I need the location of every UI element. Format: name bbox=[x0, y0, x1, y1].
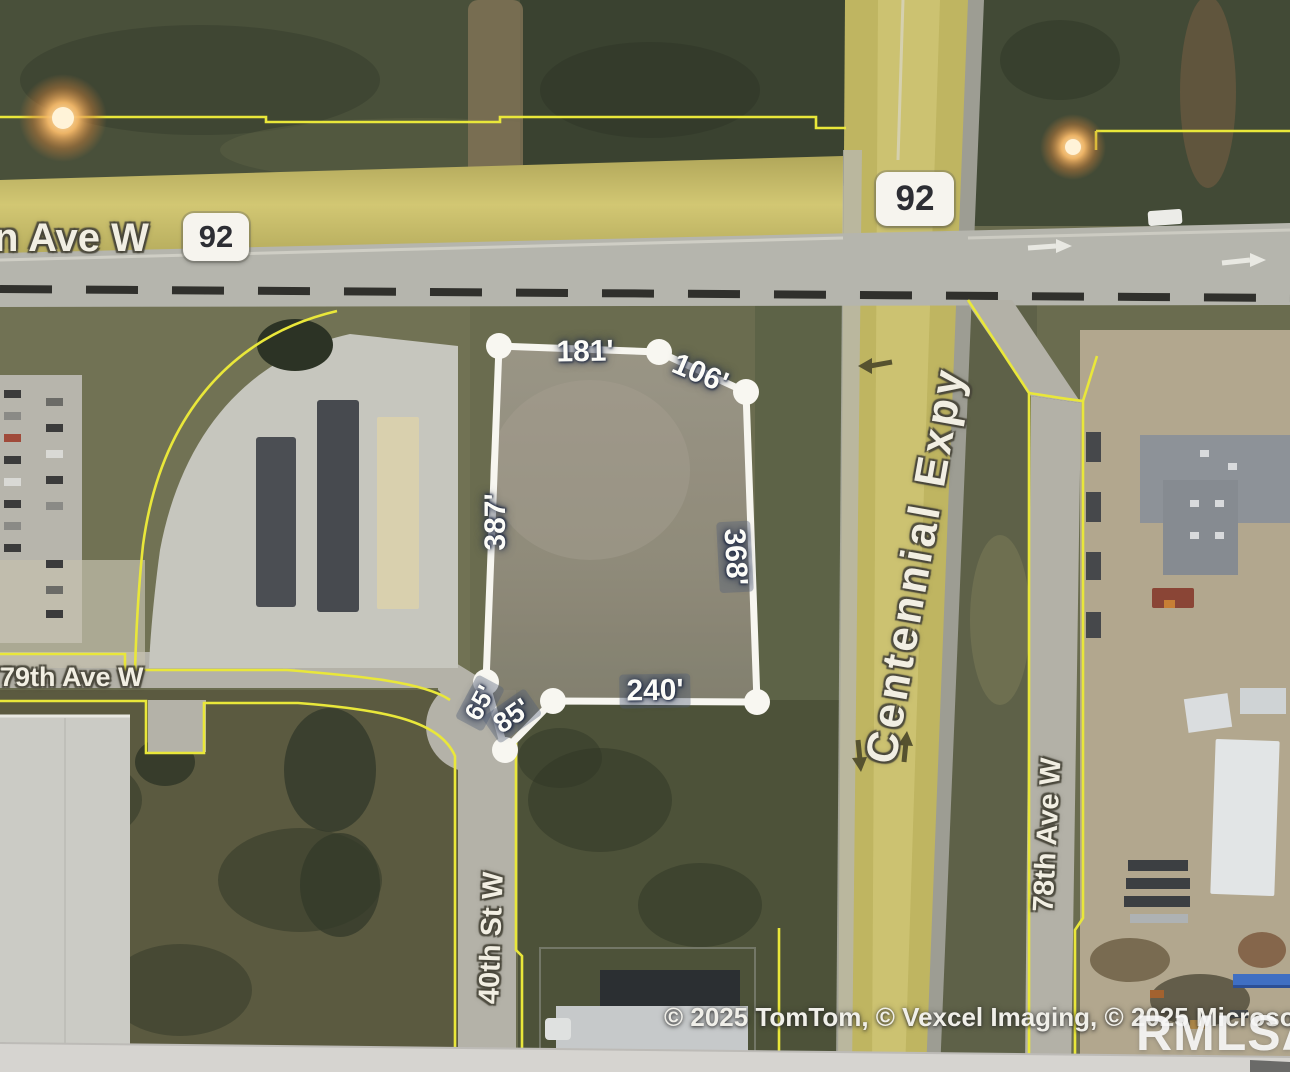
warehouse-roof bbox=[1210, 739, 1279, 896]
parcel-boundary bbox=[473, 333, 770, 763]
building-roof bbox=[317, 400, 359, 612]
route-92-shield-left: 92 bbox=[183, 213, 249, 261]
route-92-label: 92 bbox=[896, 179, 935, 219]
vehicle bbox=[1148, 209, 1183, 226]
building-roof bbox=[256, 437, 296, 607]
route-92-shield-right: 92 bbox=[876, 172, 954, 226]
map-canvas[interactable]: n Ave W 92 92 Centennial Expy 79th Ave W… bbox=[0, 0, 1290, 1072]
satellite-imagery bbox=[0, 0, 1290, 1072]
building-bottom-left bbox=[0, 716, 130, 1052]
rmls-watermark: RMLSA bbox=[1136, 1004, 1290, 1062]
route-92-label: 92 bbox=[199, 219, 233, 255]
